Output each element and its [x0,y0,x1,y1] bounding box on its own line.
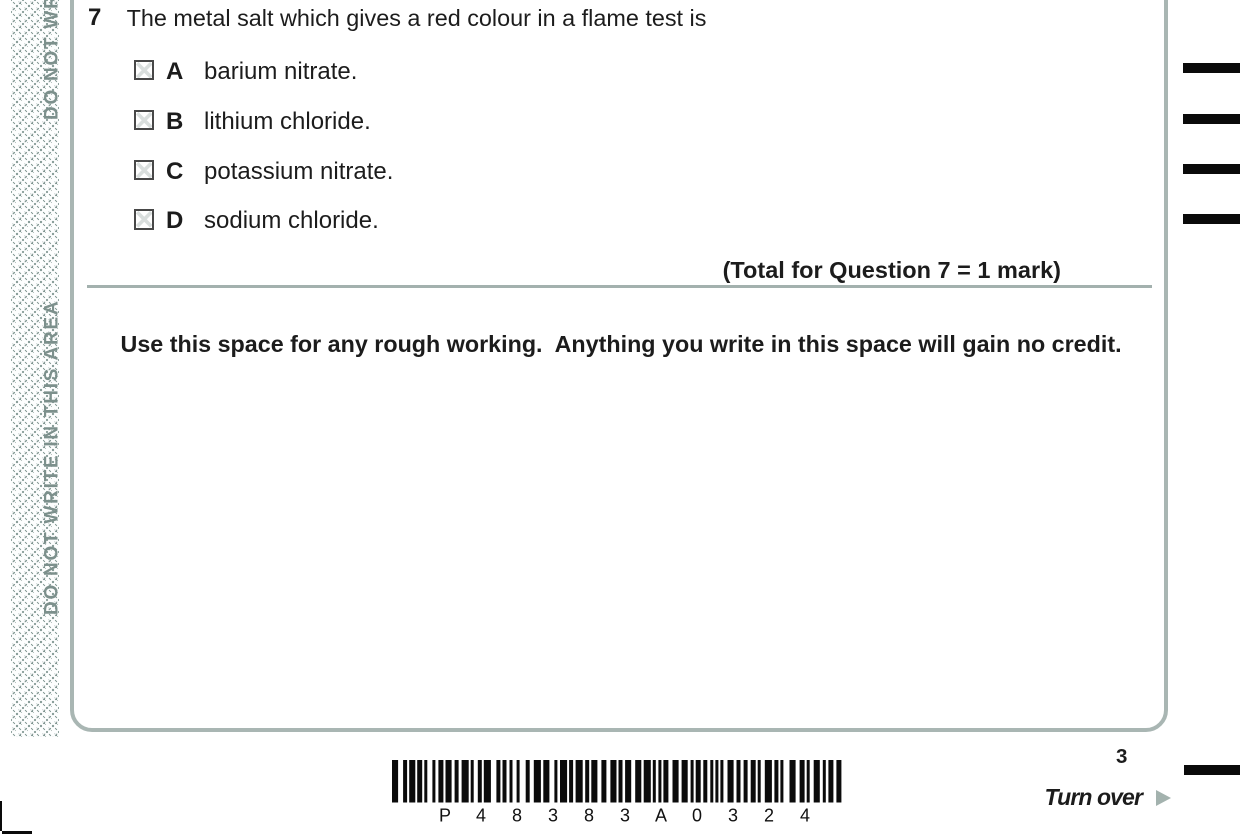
svg-text:8: 8 [512,806,522,826]
svg-text:3: 3 [620,806,630,826]
svg-text:P: P [439,806,451,826]
svg-text:A: A [655,806,667,826]
svg-text:2: 2 [764,806,774,826]
svg-text:0: 0 [692,806,702,826]
svg-text:3: 3 [728,806,738,826]
svg-text:4: 4 [800,806,810,826]
svg-text:8: 8 [584,806,594,826]
svg-text:3: 3 [548,806,558,826]
svg-text:4: 4 [476,806,486,826]
